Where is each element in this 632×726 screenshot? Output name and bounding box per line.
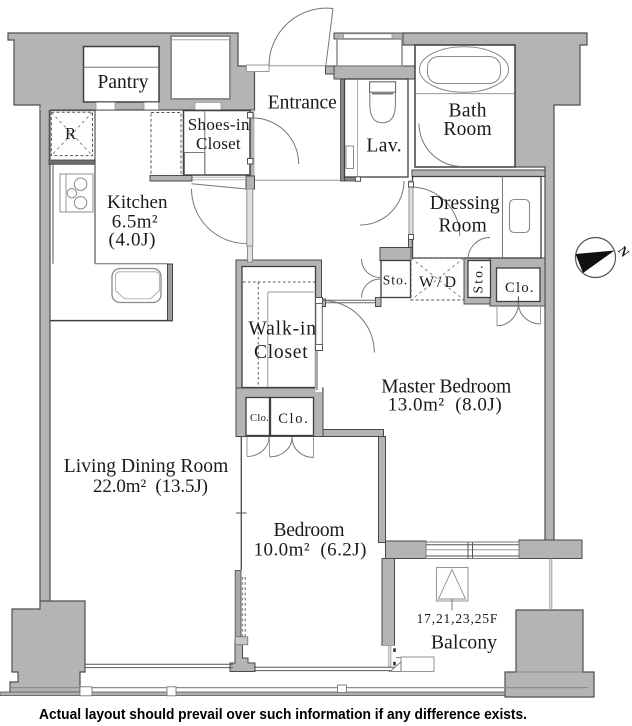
svg-text:(4.0J): (4.0J) bbox=[109, 230, 156, 251]
svg-text:Balcony: Balcony bbox=[431, 633, 497, 654]
svg-text:Actual layout should prevail o: Actual layout should prevail over such i… bbox=[39, 706, 527, 723]
svg-text:Clo.: Clo. bbox=[250, 413, 269, 424]
svg-text:17,21,23,25F: 17,21,23,25F bbox=[417, 611, 498, 626]
svg-text:Clo.: Clo. bbox=[278, 411, 308, 427]
svg-text:Lav.: Lav. bbox=[366, 136, 401, 157]
svg-text:Room: Room bbox=[443, 119, 491, 140]
svg-text:Dressing: Dressing bbox=[430, 193, 500, 214]
svg-text:Room: Room bbox=[438, 216, 486, 237]
svg-text:Walk-in: Walk-in bbox=[248, 319, 316, 340]
svg-text:Clo.: Clo. bbox=[505, 280, 534, 296]
svg-text:R: R bbox=[65, 124, 76, 143]
svg-text:Pantry: Pantry bbox=[98, 72, 149, 93]
svg-text:Closet: Closet bbox=[254, 342, 308, 363]
svg-text:W/D: W/D bbox=[419, 274, 456, 291]
svg-text:Closet: Closet bbox=[196, 134, 241, 153]
svg-text:22.0m² (13.5J): 22.0m² (13.5J) bbox=[93, 476, 208, 497]
svg-text:10.0m² (6.2J): 10.0m² (6.2J) bbox=[254, 540, 367, 561]
svg-text:Sto.: Sto. bbox=[383, 273, 408, 288]
svg-text:Entrance: Entrance bbox=[268, 93, 337, 114]
svg-text:Bedroom: Bedroom bbox=[274, 520, 345, 541]
svg-text:Kitchen: Kitchen bbox=[107, 192, 168, 213]
svg-text:13.0m² (8.0J): 13.0m² (8.0J) bbox=[388, 395, 502, 416]
svg-text:Living Dining Room: Living Dining Room bbox=[64, 456, 229, 477]
svg-text:Shoes-in: Shoes-in bbox=[188, 115, 250, 134]
